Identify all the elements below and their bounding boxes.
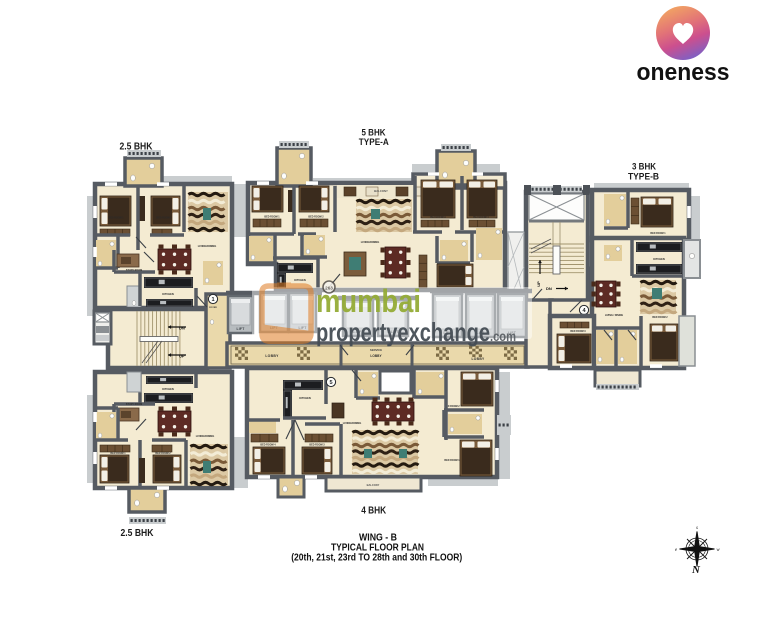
svg-text:LIVING/DINING: LIVING/DINING — [361, 240, 379, 244]
svg-text:TYPE-A: TYPE-A — [359, 137, 389, 148]
svg-text:BALCONY: BALCONY — [367, 483, 380, 487]
svg-text:BED ROOM 3: BED ROOM 3 — [473, 216, 489, 219]
svg-text:2.5 BHK: 2.5 BHK — [120, 142, 154, 153]
svg-text:KITCHEN: KITCHEN — [299, 396, 311, 400]
svg-text:KITCHEN: KITCHEN — [653, 257, 665, 261]
svg-text:BED ROOM 1: BED ROOM 1 — [110, 452, 126, 455]
svg-text:mumbai: mumbai — [316, 283, 421, 319]
svg-text:TYPE-B: TYPE-B — [628, 172, 659, 183]
svg-text:BED ROOM 2: BED ROOM 2 — [308, 216, 324, 219]
svg-text:5: 5 — [329, 380, 332, 386]
svg-text:BALCONY: BALCONY — [374, 189, 388, 193]
svg-text:propertyexchange: propertyexchange — [316, 317, 490, 347]
svg-text:(20th, 21st, 23rd TO 28th and: (20th, 21st, 23rd TO 28th and 30th FLOOR… — [291, 553, 462, 564]
svg-text:LIVING / DINING: LIVING / DINING — [605, 314, 623, 317]
svg-text:.com: .com — [490, 328, 516, 344]
svg-text:4 BHK: 4 BHK — [361, 506, 387, 517]
svg-text:BED ROOM 1: BED ROOM 1 — [108, 217, 124, 220]
svg-text:BED ROOM 4: BED ROOM 4 — [430, 216, 446, 219]
svg-text:BED ROOM 2: BED ROOM 2 — [155, 452, 171, 455]
svg-text:oneness: oneness — [637, 59, 730, 86]
svg-text:LOBBY: LOBBY — [265, 354, 279, 358]
svg-text:LOBBY: LOBBY — [370, 354, 382, 358]
svg-text:N: N — [691, 564, 701, 576]
svg-text:2.5 BHK: 2.5 BHK — [121, 528, 155, 539]
svg-text:s: s — [696, 526, 698, 531]
svg-text:UP: UP — [536, 281, 541, 287]
svg-text:LOBBY: LOBBY — [471, 357, 485, 361]
svg-text:BED ROOM 2: BED ROOM 2 — [156, 217, 172, 220]
svg-text:KITCHEN: KITCHEN — [162, 387, 174, 391]
svg-text:LIVING/DINING: LIVING/DINING — [198, 244, 216, 248]
svg-text:LIVING/DINING: LIVING/DINING — [343, 421, 361, 425]
svg-text:STUDY ROOM: STUDY ROOM — [126, 403, 142, 406]
svg-text:UP: UP — [179, 354, 185, 359]
svg-text:KITCHEN: KITCHEN — [294, 278, 306, 282]
svg-text:DN: DN — [546, 286, 552, 291]
svg-text:FOYER: FOYER — [209, 307, 217, 309]
svg-text:LIVING/DINING: LIVING/DINING — [196, 434, 214, 438]
svg-text:DN: DN — [179, 326, 185, 331]
svg-text:SERVICE: SERVICE — [370, 348, 382, 352]
svg-text:BED ROOM 1: BED ROOM 1 — [264, 216, 280, 219]
svg-text:1: 1 — [211, 297, 214, 303]
svg-text:BED ROOM 3: BED ROOM 3 — [570, 330, 586, 333]
svg-text:BED ROOM 4: BED ROOM 4 — [260, 444, 276, 447]
svg-text:KITCHEN: KITCHEN — [162, 292, 174, 296]
svg-text:BED ROOM 3: BED ROOM 3 — [309, 444, 325, 447]
svg-text:BED ROOM 2: BED ROOM 2 — [652, 316, 668, 319]
svg-text:BED ROOM 1: BED ROOM 1 — [444, 459, 460, 462]
svg-text:STUDY ROOM: STUDY ROOM — [126, 269, 142, 272]
svg-text:LIFT: LIFT — [237, 327, 246, 331]
svg-text:BED ROOM 1: BED ROOM 1 — [650, 232, 666, 235]
